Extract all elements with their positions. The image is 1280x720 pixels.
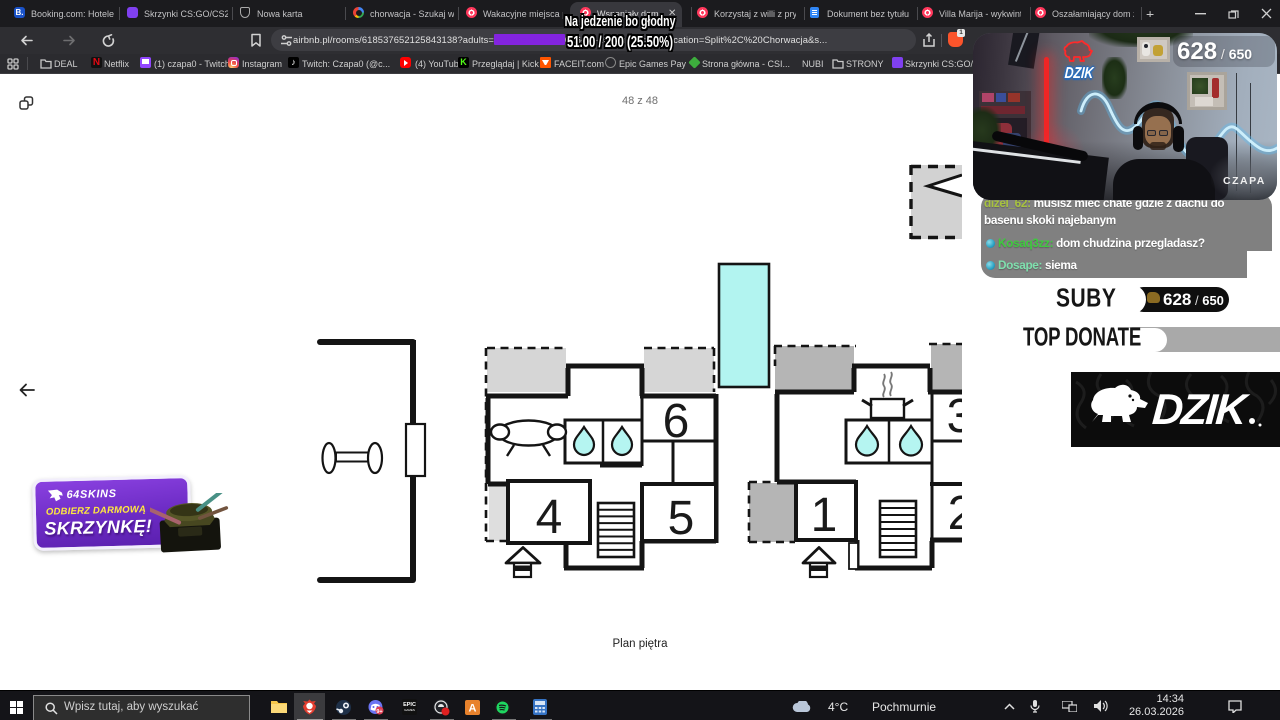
svg-text:9+: 9+ [376, 709, 382, 715]
svg-text:5: 5 [668, 492, 695, 545]
svg-text:6: 6 [663, 395, 690, 448]
svg-text:A: A [469, 703, 477, 715]
svg-text:GAMES: GAMES [404, 708, 415, 712]
svg-text:4: 4 [536, 491, 563, 544]
svg-text:DZIK: DZIK [1151, 386, 1252, 434]
svg-text:1: 1 [811, 489, 838, 542]
